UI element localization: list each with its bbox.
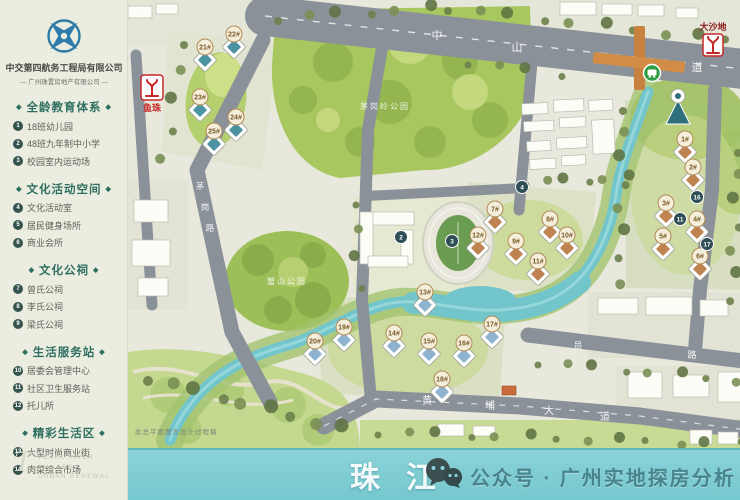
diamond-icon: ◆: [99, 429, 105, 437]
legend-item-number-badge: 9: [13, 319, 23, 329]
legend-section: ◆生活服务站◆10居委会管理中心11社区卫生服务站12托儿所: [0, 344, 128, 413]
legend-item-number-badge: 1: [13, 121, 23, 131]
brt-bus-icon: [644, 65, 661, 82]
project-name-en: T PEARL RIVER VILLAGE URBAN RENEWAL: [12, 453, 128, 482]
building-number-badge: 16#: [456, 335, 472, 351]
svg-text:4#: 4#: [693, 217, 701, 224]
legend-item: 3校园室内运动场: [13, 155, 128, 168]
svg-text:3#: 3#: [662, 201, 670, 208]
svg-text:20#: 20#: [309, 339, 321, 346]
road-label-char: 道: [600, 410, 610, 423]
village-blocks-layer: [521, 97, 615, 170]
svg-text:1#: 1#: [681, 137, 689, 144]
pearl-river-strip: 珠 江 公众号 · 广州实地探房分析: [128, 448, 740, 500]
road-label-char: 道: [692, 60, 703, 74]
legend-section-title-text: 文化公祠: [39, 262, 89, 278]
building-number-badge: 19#: [336, 319, 352, 335]
company-name: 中交第四航务工程局有限公司: [3, 63, 125, 73]
legend-item-label: 社区卫生服务站: [27, 382, 90, 395]
building-number-badge: 21#: [197, 39, 213, 55]
road-label-char: 埔: [485, 399, 495, 412]
svg-text:12#: 12#: [472, 233, 484, 240]
building-number-badge: 11#: [530, 253, 546, 269]
building-number-badge: 23#: [192, 89, 208, 105]
legend-item: 6商业会所: [13, 236, 128, 249]
legend-item-number-badge: 3: [13, 156, 23, 166]
legend-item-label: 居民健身场所: [27, 219, 81, 232]
building-number-badge: 1#: [677, 131, 693, 147]
legend-section-title: ◆文化活动空间◆: [0, 181, 128, 197]
road-label-char: 山: [512, 41, 523, 54]
legend-item: 248班九年制中小学: [13, 137, 128, 150]
svg-text:13#: 13#: [419, 290, 431, 297]
svg-text:11: 11: [677, 216, 684, 223]
legend-item-label: 18班幼儿园: [27, 120, 73, 133]
legend-item: 7曾氏公祠: [13, 283, 128, 296]
legend-item: 11社区卫生服务站: [13, 382, 128, 395]
svg-text:25#: 25#: [208, 129, 220, 136]
legend-section: ◆文化公祠◆7曾氏公祠8李氏公祠9梁氏公祠: [0, 262, 128, 331]
legend-item-number-badge: 6: [13, 238, 23, 248]
svg-text:22#: 22#: [228, 32, 240, 39]
diamond-icon: ◆: [93, 266, 99, 274]
metro-station-dashadi: 大沙地: [699, 21, 726, 56]
masterplan-render: 中山大道茅岗路员路黄埔大道茅岗岭公园蟹山公园 鱼珠大沙地 21# 22# 23#…: [128, 0, 740, 448]
legend-item-number-badge: 12: [13, 401, 23, 411]
svg-text:15#: 15#: [423, 339, 435, 346]
building-number-badge: 18#: [434, 371, 450, 387]
building-number-badge: 22#: [226, 26, 242, 42]
road-label-char: 路: [206, 223, 215, 233]
facility-number-badge: 17: [701, 238, 714, 251]
legend-item-label: 曾氏公祠: [27, 283, 63, 296]
svg-text:8#: 8#: [546, 217, 554, 224]
legend-sections: ◆全龄教育体系◆118班幼儿园248班九年制中小学3校园室内运动场◆文化活动空间…: [0, 99, 128, 476]
legend-section: ◆全龄教育体系◆118班幼儿园248班九年制中小学3校园室内运动场: [0, 99, 128, 168]
legend-item-number-badge: 11: [13, 383, 23, 393]
legend-section-title-text: 精彩生活区: [33, 425, 96, 441]
metro-station-label: 鱼珠: [143, 102, 162, 113]
svg-text:3: 3: [450, 238, 454, 245]
facility-number-badge: 3: [446, 235, 459, 248]
legend-item-number-badge: 10: [13, 366, 23, 376]
road-label-char: 员: [573, 341, 582, 351]
legend-item-label: 校园室内运动场: [27, 155, 90, 168]
legend-item-label: 文化活动室: [27, 201, 72, 214]
river-name-char-1: 珠: [350, 453, 380, 497]
legend-item-label: 李氏公祠: [27, 300, 63, 313]
building-number-badge: 3#: [658, 195, 674, 211]
building-number-badge: 17#: [484, 316, 500, 332]
metro-station-label: 大沙地: [699, 21, 726, 32]
diamond-icon: ◆: [99, 348, 105, 356]
building-number-badge: 4#: [689, 211, 705, 227]
legend-item-number-badge: 8: [13, 302, 23, 312]
facility-number-badge: 16: [691, 191, 704, 204]
building-number-badge: 9#: [508, 233, 524, 249]
watermark-text: 公众号 · 广州实地探房分析: [470, 462, 736, 491]
facility-number-badge: 2: [395, 231, 408, 244]
building-number-badge: 25#: [206, 123, 222, 139]
legend-item: 8李氏公祠: [13, 300, 128, 313]
developer-name: — 广州珠置房地产有限公司 —: [0, 76, 128, 86]
legend-sidebar: 中交第四航务工程局有限公司 — 广州珠置房地产有限公司 — ◆全龄教育体系◆11…: [0, 0, 128, 500]
building-number-badge: 20#: [307, 333, 323, 349]
svg-text:18#: 18#: [436, 377, 448, 384]
legend-section-title: ◆文化公祠◆: [0, 262, 128, 278]
legend-section-title: ◆全龄教育体系◆: [0, 99, 128, 115]
svg-text:16#: 16#: [458, 341, 470, 348]
legend-section: ◆文化活动空间◆4文化活动室5居民健身场所6商业会所: [0, 181, 128, 250]
facility-number-badge: 4: [516, 181, 529, 194]
legend-section-title-text: 文化活动空间: [27, 181, 102, 197]
diamond-icon: ◆: [106, 103, 112, 111]
park-label: 蟹山公园: [267, 276, 307, 286]
legend-item: 9梁氏公祠: [13, 318, 128, 331]
metro-station-yuzhu: 鱼珠: [141, 75, 163, 113]
monogram: T: [14, 439, 32, 484]
road-label-char: 中: [432, 29, 443, 42]
diamond-icon: ◆: [16, 185, 22, 193]
masterplan-map: 中山大道茅岗路员路黄埔大道茅岗岭公园蟹山公园 鱼珠大沙地 21# 22# 23#…: [128, 0, 740, 448]
building-number-badge: 13#: [417, 284, 433, 300]
park-label: 茅岗岭公园: [360, 101, 410, 111]
building-number-badge: 12#: [470, 227, 486, 243]
diamond-icon: ◆: [16, 103, 22, 111]
svg-text:17: 17: [703, 241, 711, 248]
building-number-badge: 2#: [685, 159, 701, 175]
building-number-badge: 14#: [386, 325, 402, 341]
legend-section-title-text: 生活服务站: [33, 344, 96, 360]
svg-text:16: 16: [693, 194, 701, 201]
svg-text:19#: 19#: [338, 325, 350, 332]
road-label-char: 岗: [201, 202, 210, 212]
svg-text:17#: 17#: [486, 322, 498, 329]
legend-item: 5居民健身场所: [13, 219, 128, 232]
facility-number-badge: 11: [674, 213, 687, 226]
diamond-icon: ◆: [22, 429, 28, 437]
legend-item: 12托儿所: [13, 399, 128, 412]
diamond-icon: ◆: [106, 185, 112, 193]
diamond-icon: ◆: [22, 348, 28, 356]
svg-text:2#: 2#: [689, 165, 697, 172]
legend-item: 4文化活动室: [13, 201, 128, 214]
legend-item-label: 梁氏公祠: [27, 318, 63, 331]
building-number-badge: 7#: [487, 201, 503, 217]
legend-section-title-text: 全龄教育体系: [27, 99, 102, 115]
building-number-badge: 8#: [542, 211, 558, 227]
legend-item: 10居委会管理中心: [13, 364, 128, 377]
building-number-badge: 5#: [655, 228, 671, 244]
legend-item-label: 商业会所: [27, 236, 63, 249]
svg-text:6#: 6#: [696, 254, 704, 261]
diamond-icon: ◆: [29, 266, 35, 274]
road-label-char: 茅: [196, 181, 205, 191]
road-label-char: 大: [544, 404, 554, 417]
legend-item-label: 48班九年制中小学: [27, 137, 100, 150]
svg-text:14#: 14#: [388, 331, 400, 338]
building-number-badge: 15#: [421, 333, 437, 349]
road-label-char: 路: [687, 349, 696, 360]
masterplan-poster: 中交第四航务工程局有限公司 — 广州珠置房地产有限公司 — ◆全龄教育体系◆11…: [0, 0, 740, 500]
legend-item-number-badge: 4: [13, 203, 23, 213]
legend-item-number-badge: 5: [13, 220, 23, 230]
legend-item-number-badge: 2: [13, 139, 23, 149]
legend-section-title: ◆生活服务站◆: [0, 344, 128, 360]
svg-text:21#: 21#: [199, 45, 211, 52]
legend-item-label: 托儿所: [27, 399, 54, 412]
road-label-char: 黄: [422, 394, 432, 407]
svg-text:9#: 9#: [512, 239, 520, 246]
svg-text:4: 4: [520, 184, 524, 191]
wechat-icon: [424, 457, 464, 491]
legend-item-label: 居委会管理中心: [27, 364, 90, 377]
svg-text:10#: 10#: [561, 233, 573, 240]
svg-text:23#: 23#: [194, 95, 206, 102]
svg-text:2: 2: [399, 234, 403, 241]
svg-text:7#: 7#: [491, 207, 499, 214]
legend-item-number-badge: 7: [13, 284, 23, 294]
building-number-badge: 24#: [228, 109, 244, 125]
svg-text:11#: 11#: [532, 259, 543, 266]
svg-text:5#: 5#: [659, 234, 667, 241]
legend-item: 118班幼儿园: [13, 120, 128, 133]
svg-text:24#: 24#: [230, 115, 242, 122]
map-disclaimer: 此总平面图为设计过程稿: [135, 426, 218, 436]
developer-logo-icon: [41, 13, 87, 59]
building-number-badge: 10#: [559, 227, 575, 243]
